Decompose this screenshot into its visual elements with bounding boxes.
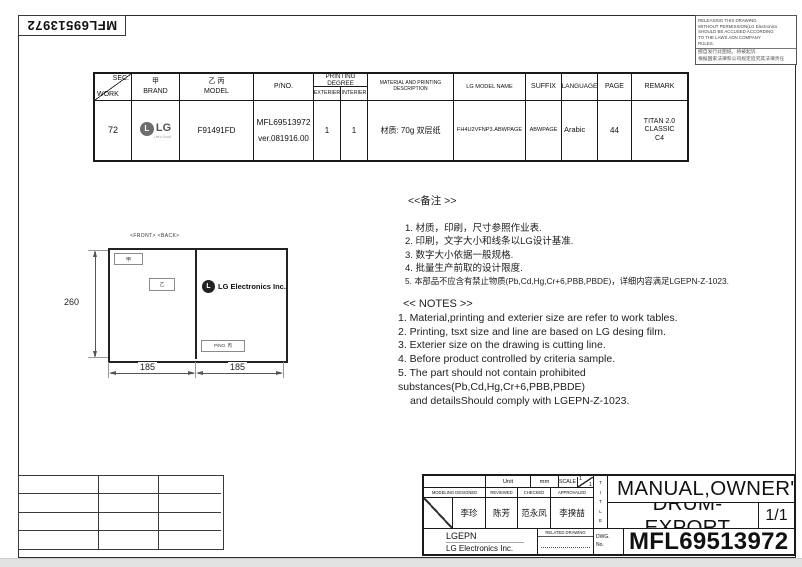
header-sec-label: SEC.	[113, 75, 129, 83]
front-back-label: <FRONT> <BACK>	[130, 233, 180, 239]
designer-signature-cell	[423, 497, 453, 529]
title-line2-cell: DRUM-EXPORT	[607, 502, 759, 529]
header-printing-degree-label: PRINTING DEGREE	[314, 74, 367, 87]
interier-value: 1	[352, 126, 356, 135]
related-drawing-cell: RELATED DRAWING	[537, 528, 594, 555]
pno-placeholder-box: P/NO. 丙	[201, 340, 245, 352]
header-model-label: MODEL	[204, 88, 229, 96]
header-page: PAGE	[598, 74, 632, 101]
notes-cn-item: 3. 数字大小依据一般规格.	[405, 249, 735, 262]
scale-numerator: 1	[579, 476, 582, 482]
yi-placeholder-box: 乙	[149, 278, 175, 291]
pno-version: ver.081916.00	[258, 134, 309, 143]
reviewed-label: REVIEWED	[490, 490, 512, 495]
revision-cell	[159, 531, 221, 549]
header-pno: P/NO.	[254, 74, 314, 101]
unit-value: mm	[540, 479, 550, 485]
checker-name-cell: 范永凤	[517, 497, 551, 529]
notes-en-item: 5. The part should not contain prohibite…	[398, 367, 738, 395]
lg-tagline: Life's Good	[154, 136, 171, 140]
rotated-pno-text: MFL69513972	[27, 18, 117, 33]
header-brand-label: BRAND	[143, 88, 168, 96]
designer-name: 李珍	[460, 507, 477, 519]
header-lg-model-name: LG MODEL NAME	[454, 74, 526, 101]
dim-arrow-left-1	[109, 371, 116, 375]
bottom-gray-strip	[0, 558, 802, 567]
company-cell: LGEPN LG Electronics Inc.	[423, 528, 538, 555]
header-work-label: WORK	[97, 91, 119, 99]
lg-logo-icon: L	[202, 280, 215, 293]
cell-exterier: 1	[314, 101, 341, 160]
modeling-designed-label: MODELING DESIGNED	[432, 490, 477, 495]
header-pno-label: P/NO.	[274, 83, 293, 91]
cell-work: 72	[95, 101, 132, 160]
revision-cell	[99, 476, 159, 494]
sheet-cell: 1/1	[758, 502, 795, 529]
pno-box-label: P/NO. 丙	[214, 343, 232, 349]
lg-logo-icon: L	[140, 122, 154, 136]
dim-ext-tick-left	[108, 362, 109, 378]
jia-label: 甲	[126, 256, 131, 263]
material-value: 材质: 70g 双层纸	[380, 126, 440, 135]
manual-outline-rect	[108, 248, 288, 363]
cell-page: 44	[598, 101, 632, 160]
approvaled-label: APPROVALED	[558, 490, 586, 495]
cell-remark: TITAN 2.0 CLASSIC C4	[632, 101, 687, 160]
header-brand: 甲 BRAND	[132, 74, 180, 101]
notes-en-title: << NOTES >>	[403, 298, 738, 312]
drawing-title-line1: MANUAL,OWNER'S	[617, 477, 795, 501]
pno-value: MFL69513972	[256, 118, 310, 128]
cell-interier: 1	[341, 101, 368, 160]
warning-english: RELEASING THIS DRAWING WITHOUT PERMISSIO…	[696, 16, 796, 48]
notes-cn-title: <<备注 >>	[408, 195, 735, 208]
header-model: 乙 丙 MODEL	[180, 74, 254, 101]
company-full-name: LG Electronics Inc.	[446, 544, 513, 553]
notes-en-item: 2. Printing, tsxt size and line are base…	[398, 326, 738, 340]
revision-cell	[99, 513, 159, 531]
suffix-value: ABWPAGE	[530, 127, 558, 133]
notes-english: << NOTES >> 1. Material,printing and ext…	[398, 298, 738, 408]
revision-cell	[159, 494, 221, 512]
revision-cell	[159, 513, 221, 531]
reviewer-name: 陈芳	[493, 507, 510, 519]
revision-cell	[19, 531, 99, 549]
scale-ratio-box: 1 1	[577, 477, 593, 487]
cell-suffix: ABWPAGE	[526, 101, 562, 160]
lg-model-name-value: FH4U2VFNP3.ABWPAGE	[457, 127, 522, 133]
spec-table: SEC. WORK 甲 BRAND 乙 丙 MODEL P/NO. PRINTI…	[93, 72, 689, 162]
dim-arrow-left-2	[196, 371, 203, 375]
header-model-cn: 乙 丙	[209, 78, 225, 86]
notes-cn-item: 1. 材质，印刷，尺寸参照作业表.	[405, 222, 735, 235]
header-remark-label: REMARK	[645, 83, 675, 91]
revision-cell	[99, 531, 159, 549]
notes-cn-item: 5. 本部品不应含有禁止物质(Pb,Cd,Hg,Cr+6,PBB,PBDE)，详…	[405, 275, 735, 288]
company-divider	[446, 542, 524, 543]
revision-cell	[19, 476, 99, 494]
dim-line-right	[198, 373, 281, 374]
lg-electronics-text: LG Electronics Inc.	[218, 282, 286, 291]
dim-ext-tick-top	[88, 250, 108, 251]
header-material-label: MATERIAL AND PRINTING DESCRIPTION	[368, 81, 453, 93]
dim-ext-tick-bottom	[88, 357, 108, 358]
title-vertical-label: T I T L E	[599, 478, 602, 526]
approver-name: 李揆喆	[559, 507, 585, 519]
dim-ext-tick-right	[283, 362, 284, 378]
header-work-sec: SEC. WORK	[95, 74, 132, 101]
model-value: F91491FD	[198, 126, 236, 135]
title-line1-cell: MANUAL,OWNER'S	[607, 475, 795, 503]
cell-pno: MFL69513972 ver.081916.00	[254, 101, 314, 160]
unit-label: Unit	[503, 479, 513, 485]
dwg-no-label: DWG. No.	[596, 534, 610, 549]
scale-label: SCALE	[559, 479, 576, 485]
manual-center-fold-line	[195, 248, 197, 359]
cell-language: Arabic	[562, 101, 598, 160]
notes-chinese: <<备注 >> 1. 材质，印刷，尺寸参照作业表. 2. 印刷，文字大小和线条以…	[405, 195, 735, 288]
release-warning-box: RELEASING THIS DRAWING WITHOUT PERMISSIO…	[695, 15, 797, 65]
header-printing-degree: PRINTING DEGREE	[314, 74, 368, 87]
work-value: 72	[108, 125, 118, 135]
dim-arrow-up	[93, 250, 97, 257]
remark-value-line2: C4	[655, 135, 664, 143]
cell-model: F91491FD	[180, 101, 254, 160]
page-value: 44	[610, 126, 619, 135]
dim-arrow-right-2	[276, 371, 283, 375]
header-suffix: SUFFIX	[526, 74, 562, 101]
lg-logo-text: LG	[156, 122, 171, 135]
dim-arrow-right-1	[188, 371, 195, 375]
back-cover-logo: L LG Electronics Inc.	[202, 280, 286, 293]
header-material: MATERIAL AND PRINTING DESCRIPTION	[368, 74, 454, 101]
remark-value-line1: TITAN 2.0 CLASSIC	[632, 118, 687, 134]
header-remark: REMARK	[632, 74, 687, 101]
checker-name: 范永凤	[521, 507, 547, 519]
revision-table	[18, 475, 224, 550]
language-value: Arabic	[564, 126, 585, 135]
title-vertical-cell: T I T L E	[593, 475, 608, 529]
related-drawing-label: RELATED DRAWING	[538, 529, 593, 537]
lg-brand-logo: L LG	[140, 122, 171, 136]
header-language-label: LANGUAGE	[562, 83, 597, 90]
cell-brand: L LG Life's Good	[132, 101, 180, 160]
related-drawing-dotted-line	[541, 537, 591, 548]
approver-name-cell: 李揆喆	[550, 497, 594, 529]
revision-cell	[19, 513, 99, 531]
reviewer-name-cell: 陈芳	[485, 497, 518, 529]
notes-cn-item: 2. 印刷，文字大小和线条以LG设计基准.	[405, 235, 735, 248]
rotated-pno-box: MFL69513972	[18, 15, 126, 36]
notes-cn-item: 4. 批量生产前取的设计限度.	[405, 262, 735, 275]
warning-en-line: RULES.	[698, 41, 794, 47]
dim-height-label: 260	[64, 297, 79, 307]
revision-cell	[19, 494, 99, 512]
notes-en-item: 3. Exterier size on the drawing is cutti…	[398, 339, 738, 353]
yi-label: 乙	[159, 281, 164, 288]
notes-en-item: and detailsShould comply with LGEPN-Z-10…	[398, 395, 738, 409]
header-brand-cn: 甲	[152, 78, 159, 86]
warning-chinese: 擅自发行此图纸，将被起诉. 根据国家法律和公司规定追究其法律责任	[696, 48, 796, 65]
revision-cell	[159, 476, 221, 494]
checked-label: CHECKED	[524, 490, 544, 495]
sheet-number: 1/1	[765, 507, 787, 525]
engineering-drawing-page: MFL69513972 RELEASING THIS DRAWING WITHO…	[0, 0, 802, 567]
header-suffix-label: SUFFIX	[531, 83, 556, 91]
company-short-name: LGEPN	[446, 531, 477, 541]
dim-line-left	[111, 373, 194, 374]
jia-placeholder-box: 甲	[114, 253, 143, 265]
header-interier: INTERIER	[341, 87, 368, 101]
dim-ext-tick-mid	[195, 362, 196, 378]
header-lg-model-name-label: LG MODEL NAME	[466, 84, 512, 90]
header-interier-label: INTERIER	[342, 90, 367, 96]
dim-line-vertical	[95, 252, 96, 356]
exterier-value: 1	[325, 126, 329, 135]
header-exterier: EXTERIER	[314, 87, 341, 101]
dwg-no-cell: MFL69513972	[623, 528, 795, 555]
dwg-no-label-cell: DWG. No.	[593, 528, 624, 555]
designer-name-cell: 李珍	[452, 497, 486, 529]
cell-lg-model-name: FH4U2VFNP3.ABWPAGE	[454, 101, 526, 160]
notes-en-item: 1. Material,printing and exterier size a…	[398, 312, 738, 326]
header-page-label: PAGE	[605, 83, 624, 91]
revision-cell	[99, 494, 159, 512]
drawing-title-line2: DRUM-EXPORT	[617, 502, 758, 529]
dim-width-right-label: 185	[228, 362, 247, 372]
notes-en-item: 4. Before product controlled by criteria…	[398, 353, 738, 367]
dim-width-left-label: 185	[138, 362, 157, 372]
warning-cn-line: 根据国家法律和公司规定追究其法律责任	[698, 57, 794, 63]
header-exterier-label: EXTERIER	[314, 90, 340, 96]
dwg-no-value: MFL69513972	[629, 528, 788, 555]
header-language: LANGUAGE	[562, 74, 598, 101]
cell-material: 材质: 70g 双层纸	[368, 101, 454, 160]
